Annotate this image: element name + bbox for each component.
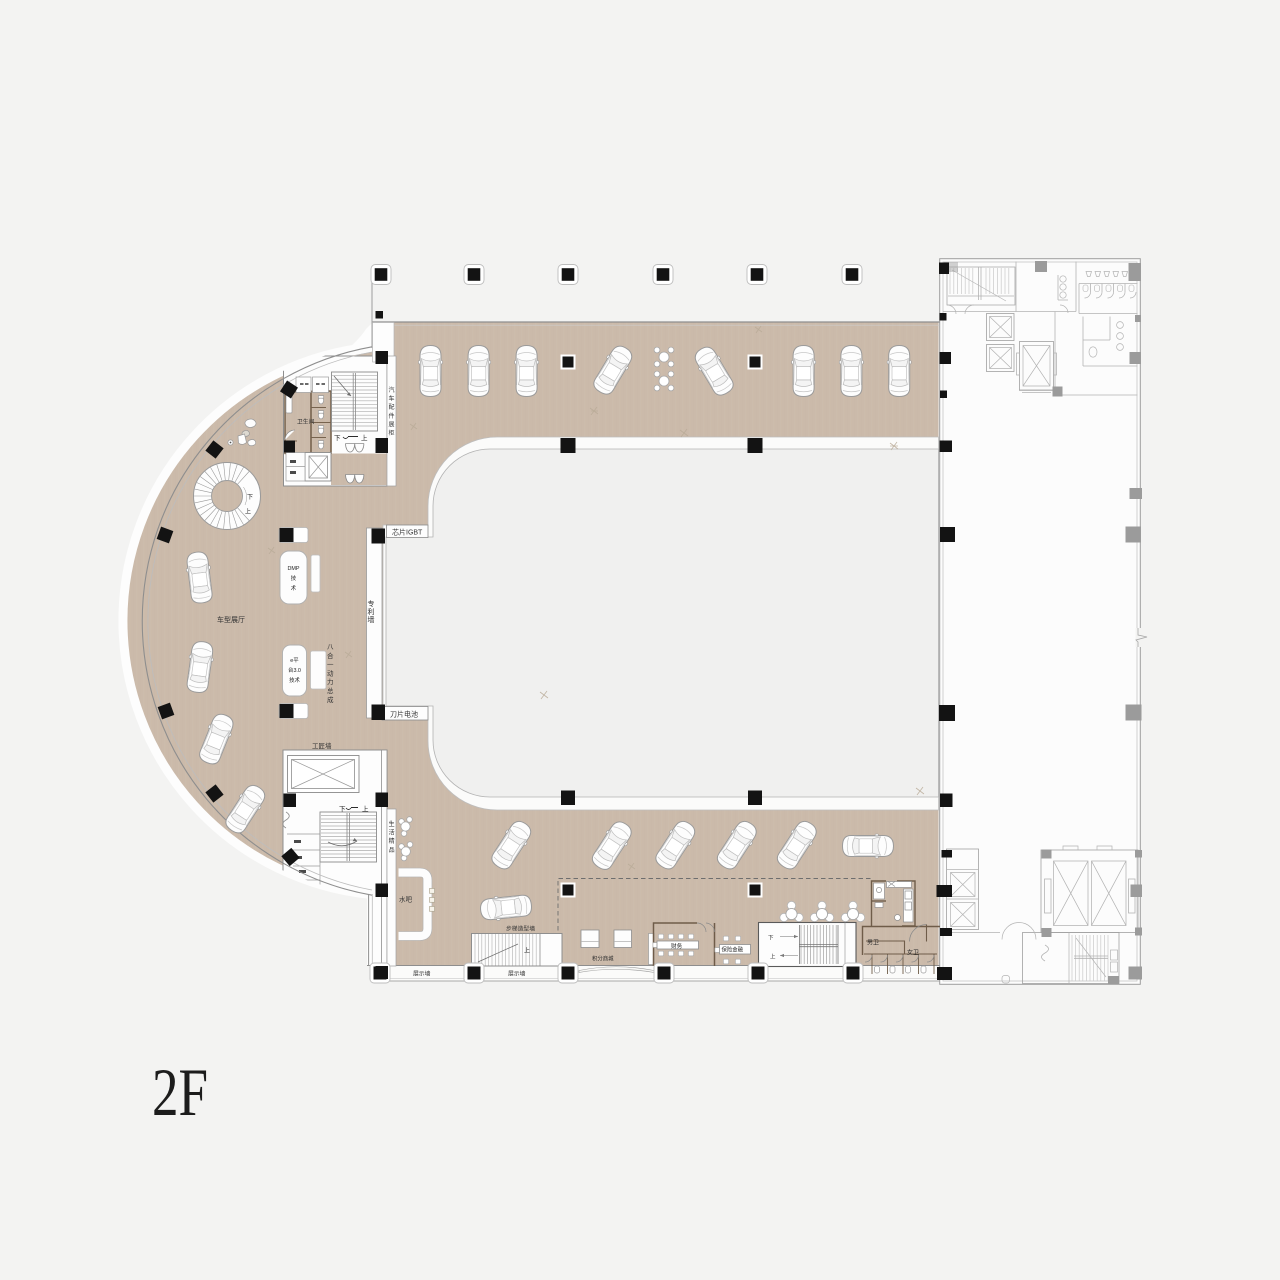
- svg-text:上: 上: [770, 953, 776, 961]
- svg-text:上: 上: [245, 508, 251, 516]
- svg-text:展示墙: 展示墙: [508, 970, 526, 978]
- svg-text:步梯造型墙: 步梯造型墙: [506, 925, 535, 933]
- svg-text:刀片电池: 刀片电池: [390, 710, 418, 719]
- svg-text:工匠墙: 工匠墙: [312, 741, 332, 750]
- svg-text:2F: 2F: [152, 1054, 208, 1130]
- svg-text:卫生间: 卫生间: [297, 418, 315, 426]
- svg-text:下: 下: [339, 805, 346, 813]
- svg-text:男卫: 男卫: [867, 940, 879, 947]
- svg-text:财务: 财务: [671, 942, 683, 950]
- svg-text:下: 下: [247, 494, 253, 501]
- svg-text:展示墙: 展示墙: [413, 970, 431, 978]
- svg-text:水吧: 水吧: [399, 895, 413, 904]
- svg-text:上: 上: [524, 947, 530, 955]
- svg-text:下: 下: [334, 434, 341, 442]
- svg-text:保险金融: 保险金融: [722, 946, 744, 954]
- svg-text:上: 上: [362, 804, 369, 813]
- svg-text:上: 上: [361, 433, 368, 442]
- svg-text:积分商城: 积分商城: [592, 955, 614, 963]
- svg-text:下: 下: [768, 935, 774, 942]
- svg-text:芯片IGBT: 芯片IGBT: [392, 528, 423, 537]
- svg-text:女卫: 女卫: [907, 949, 919, 957]
- svg-text:八合一动力总成: 八合一动力总成: [327, 644, 334, 704]
- svg-text:车型展厅: 车型展厅: [217, 615, 245, 624]
- svg-text:专利墙: 专利墙: [368, 599, 375, 624]
